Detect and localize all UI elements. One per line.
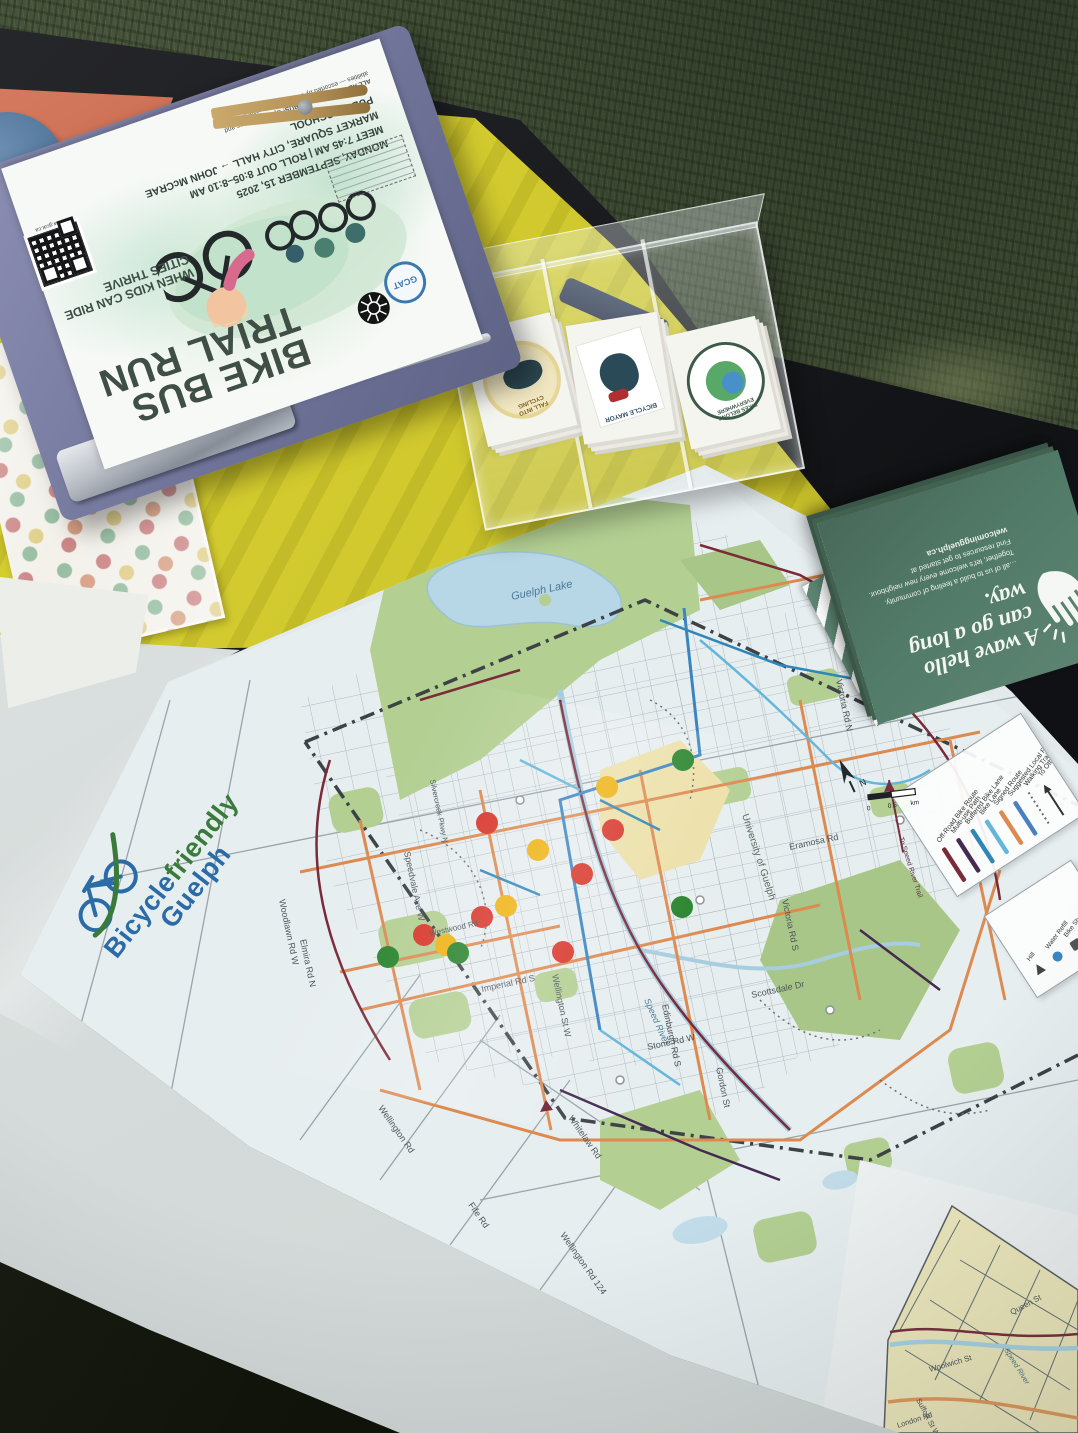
hill-icon: [1032, 962, 1046, 976]
north-arrow-icon: [834, 757, 855, 784]
water-refill-icon: [1051, 950, 1065, 964]
scale-zero: 0: [867, 805, 872, 812]
sticker-text: BICYCLE MAYOR: [598, 399, 663, 425]
sticker-stack: BIKES BELONG EVERYWHERE: [665, 316, 781, 450]
sticker-text: FALL INTO CYCLING: [497, 385, 567, 423]
scale-unit: km: [910, 799, 919, 807]
north-label: N: [858, 777, 868, 789]
sticker-stack: BICYCLE MAYOR: [566, 312, 676, 445]
scale-half: 0.5: [887, 802, 897, 810]
legend-label: Hill: [1026, 951, 1037, 963]
scale-bar: 0 0.5 km: [865, 788, 919, 812]
bike-shop-icon: [1069, 938, 1078, 952]
bicycle-mayor-sticker: BICYCLE MAYOR: [575, 326, 665, 428]
bikes-belong-everywhere-sticker: BIKES BELONG EVERYWHERE: [675, 331, 776, 432]
pamphlet-text: A wave hello can go a long way. …all of …: [842, 523, 1042, 696]
photo-of-outreach-table: Guelph Lake Woodlawn Rd W Speedvale Ave …: [0, 0, 1078, 1433]
